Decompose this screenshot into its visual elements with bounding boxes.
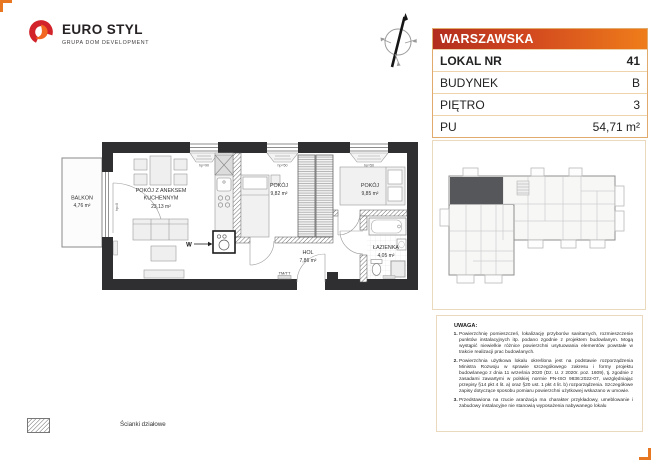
kitchen-counter bbox=[215, 153, 233, 235]
notes-title: UWAGA: bbox=[454, 323, 633, 329]
room-label-hol: HOL bbox=[302, 250, 313, 256]
window-hp-label: hp=50 bbox=[277, 164, 287, 168]
room-area-hol: 7,86 m² bbox=[300, 258, 317, 264]
unit-row-value: B bbox=[632, 76, 640, 90]
apartment-floor-plan: hp=90 hp=50 hp=50 hp=0 bbox=[50, 135, 430, 370]
unit-row-value: 3 bbox=[633, 98, 640, 112]
unit-info-card: WARSZAWSKA LOKAL NR 41 BUDYNEK B PIĘTRO … bbox=[432, 28, 648, 138]
room-label-living-2: KUCHENNYM bbox=[144, 196, 179, 202]
unit-row-label: LOKAL NR bbox=[440, 54, 502, 68]
partition-wall-swatch bbox=[27, 418, 50, 433]
note-item: Powierzchnia użytkowa lokalu określona j… bbox=[459, 359, 633, 395]
north-arrow-icon bbox=[378, 10, 420, 72]
notes-panel: UWAGA: Powierzchnię pomieszczeń, lokaliz… bbox=[436, 315, 643, 432]
room-label-balkon: BALKON bbox=[71, 196, 93, 202]
note-item: Powierzchnię pomieszczeń, lokalizację pr… bbox=[459, 332, 633, 356]
room-label-pokoj1: POKÓJ bbox=[270, 182, 289, 189]
note-item: Przedstawiona na rzucie aranżacja ma cha… bbox=[459, 398, 633, 410]
radiator bbox=[114, 241, 118, 255]
highlighted-unit bbox=[450, 177, 503, 204]
room-area-living: 23,13 m² bbox=[151, 204, 171, 210]
partition-wall-label: Ścianki działowe bbox=[120, 421, 166, 428]
unit-row-pu: PU 54,71 m² bbox=[433, 115, 647, 137]
notes-list: Powierzchnię pomieszczeń, lokalizację pr… bbox=[446, 332, 633, 410]
washer-arrow-icon bbox=[194, 242, 213, 246]
unit-row-value: 41 bbox=[627, 54, 640, 68]
room-area-balkon: 4,76 m² bbox=[74, 203, 91, 209]
stairwell bbox=[517, 181, 529, 195]
window-hp-label: hp=90 bbox=[199, 164, 209, 168]
washing-machine bbox=[213, 231, 235, 253]
building-overview-panel bbox=[432, 140, 646, 310]
apartment-datasheet-page: EURO STYL GRUPA DOM DEVELOPMENT WARSZAWS… bbox=[0, 0, 651, 460]
room-area-pokoj2: 9,85 m² bbox=[362, 191, 379, 197]
room-area-pokoj1: 9,82 m² bbox=[271, 191, 288, 197]
unit-row-label: PU bbox=[440, 120, 457, 134]
unit-row-budynek: BUDYNEK B bbox=[433, 71, 647, 93]
room-label-lazienka: ŁAZIENKA bbox=[373, 245, 399, 251]
logo-text: EURO STYL GRUPA DOM DEVELOPMENT bbox=[62, 16, 149, 46]
seam-cover bbox=[450, 205, 513, 206]
unit-row-label: PIĘTRO bbox=[440, 98, 485, 112]
meter-box bbox=[278, 276, 291, 280]
logo-tagline: GRUPA DOM DEVELOPMENT bbox=[62, 40, 149, 46]
eurostyl-flame-icon bbox=[28, 16, 54, 48]
logo-title: EURO STYL bbox=[62, 23, 149, 37]
page-corner-accent bbox=[639, 448, 651, 460]
unit-row-lokal: LOKAL NR 41 bbox=[433, 49, 647, 71]
balcony-door-hp-label: hp=0 bbox=[115, 203, 119, 211]
meter-label: TM/TT bbox=[279, 271, 291, 276]
room-label-pokoj2: POKÓJ bbox=[361, 182, 380, 189]
page-corner-accent bbox=[0, 0, 12, 12]
room-area-lazienka: 4,05 m² bbox=[378, 253, 395, 259]
wardrobe-block bbox=[298, 155, 333, 237]
street-name-header: WARSZAWSKA bbox=[433, 29, 647, 49]
unit-row-label: BUDYNEK bbox=[440, 76, 498, 90]
washer-label: W bbox=[186, 243, 192, 249]
unit-row-value: 54,71 m² bbox=[593, 120, 640, 134]
building-overview-plan bbox=[433, 141, 645, 309]
developer-logo: EURO STYL GRUPA DOM DEVELOPMENT bbox=[28, 16, 149, 48]
unit-row-pietro: PIĘTRO 3 bbox=[433, 93, 647, 115]
room-label-living: POKÓJ Z ANEKSEM bbox=[136, 187, 187, 194]
